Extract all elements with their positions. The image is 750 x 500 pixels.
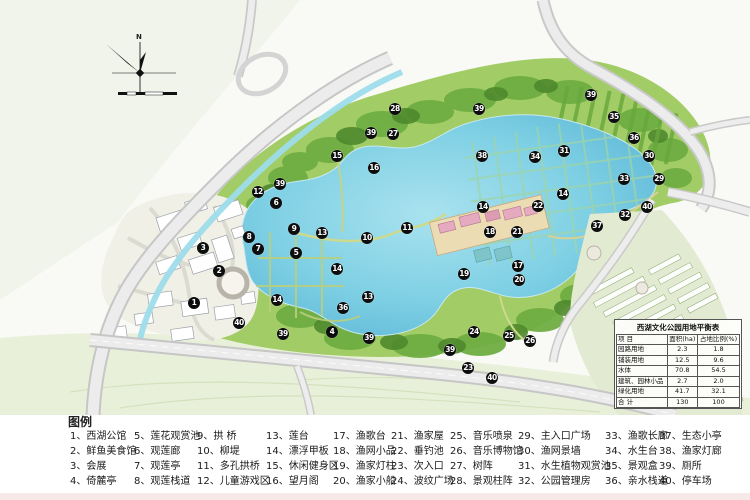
map-marker-36: 36 [628, 132, 640, 144]
map-marker-17: 17 [512, 260, 524, 272]
legend-item: 16、望月阁 [266, 475, 319, 488]
legend-item: 25、音乐喷泉 [450, 430, 513, 443]
map-marker-32: 32 [619, 209, 631, 221]
map-marker-39: 39 [277, 328, 289, 340]
table-row: 水体70.854.5 [617, 366, 740, 376]
legend-item: 4、倚麓亭 [70, 475, 116, 488]
map-marker-37: 37 [591, 220, 603, 232]
table-header-row: 项 目面积(ha)占地比例(%) [617, 335, 740, 345]
map-marker-27: 27 [387, 128, 399, 140]
bottom-strip [0, 493, 750, 500]
map-marker-4: 4 [326, 326, 338, 338]
map-marker-8: 8 [243, 231, 255, 243]
table-row: 铺装用地12.59.6 [617, 355, 740, 365]
table-header-cell: 面积(ha) [667, 335, 697, 345]
map-marker-39: 39 [585, 89, 597, 101]
map-marker-3: 3 [197, 242, 209, 254]
map-marker-14: 14 [331, 263, 343, 275]
map-marker-16: 16 [368, 162, 380, 174]
table-header-cell: 占地比例(%) [698, 335, 740, 345]
map-marker-24: 24 [468, 326, 480, 338]
table-row: 合 计130100 [617, 397, 740, 407]
legend-item: 10、柳堤 [197, 445, 240, 458]
map-marker-20: 20 [513, 274, 525, 286]
legend-item: 11、多孔拱桥 [197, 460, 260, 473]
residential-plaza-2 [636, 282, 648, 294]
map-marker-39: 39 [365, 127, 377, 139]
map-marker-22: 22 [532, 200, 544, 212]
legend-item: 23、次入口 [391, 460, 444, 473]
table-header-cell: 项 目 [617, 335, 668, 345]
map-marker-13: 13 [362, 291, 374, 303]
legend-item: 12、儿童游戏区 [197, 475, 270, 488]
map-marker-2: 2 [213, 265, 225, 277]
map-marker-11: 11 [401, 222, 413, 234]
scale-bar [118, 92, 177, 95]
legend-title: 图例 [68, 413, 92, 430]
map-marker-29: 29 [653, 173, 665, 185]
map-marker-14: 14 [557, 188, 569, 200]
legend-item: 38、渔家灯廊 [659, 445, 722, 458]
map-marker-39: 39 [444, 344, 456, 356]
legend-item: 7、观莲亭 [134, 460, 180, 473]
legend-item: 19、渔家灯柱 [333, 460, 396, 473]
map-marker-7: 7 [252, 243, 264, 255]
legend-item: 6、观莲廊 [134, 445, 180, 458]
legend-item: 34、水生台 [605, 445, 658, 458]
legend-item: 3、会展 [70, 460, 106, 473]
map-marker-12: 12 [252, 186, 264, 198]
map-marker-40: 40 [486, 372, 498, 384]
park-plan-image: N 12345678910111213131414141415161718192… [0, 0, 750, 500]
legend-item: 14、漂浮甲板 [266, 445, 329, 458]
legend-item: 21、渔家屋 [391, 430, 444, 443]
map-marker-34: 34 [529, 151, 541, 163]
legend-item: 31、水生植物观赏池 [518, 460, 611, 473]
legend-item: 2、鲜鱼美食馆 [70, 445, 136, 458]
legend-item: 9、拱 桥 [197, 430, 237, 443]
legend-item: 5、莲花观赏池 [134, 430, 200, 443]
legend-item: 20、渔家小船 [333, 475, 396, 488]
legend-item: 13、莲台 [266, 430, 309, 443]
map-marker-9: 9 [288, 223, 300, 235]
legend-item: 39、厕所 [659, 460, 702, 473]
map-marker-40: 40 [233, 317, 245, 329]
map-marker-31: 31 [558, 145, 570, 157]
legend-item: 18、渔网小品 [333, 445, 396, 458]
legend-item: 22、垂钓池 [391, 445, 444, 458]
legend-item: 32、公园管理房 [518, 475, 591, 488]
map-marker-25: 25 [503, 330, 515, 342]
legend-item: 8、观莲栈道 [134, 475, 190, 488]
table-row: 建筑、园林小品2.72.0 [617, 376, 740, 386]
legend-item: 35、景观盒 [605, 460, 658, 473]
legend-item: 27、树阵 [450, 460, 493, 473]
map-marker-36: 36 [337, 302, 349, 314]
legend-item: 37、生态小亭 [659, 430, 722, 443]
map-marker-26: 26 [524, 335, 536, 347]
map-marker-33: 33 [618, 173, 630, 185]
map-marker-6: 6 [270, 197, 282, 209]
legend-item: 29、主入口广场 [518, 430, 591, 443]
legend-item: 24、波纹广场 [391, 475, 454, 488]
svg-text:N: N [136, 33, 142, 41]
map-marker-39: 39 [363, 332, 375, 344]
map-marker-10: 10 [361, 232, 373, 244]
table-row: 绿化用地41.732.1 [617, 387, 740, 397]
map-marker-5: 5 [290, 247, 302, 259]
residential-plaza [587, 246, 601, 260]
map-marker-39: 39 [274, 178, 286, 190]
legend-item: 40、停车场 [659, 475, 712, 488]
map-marker-30: 30 [643, 150, 655, 162]
legend-item: 26、音乐博物馆 [450, 445, 523, 458]
map-marker-38: 38 [476, 150, 488, 162]
map-marker-14: 14 [271, 294, 283, 306]
map-marker-39: 39 [473, 103, 485, 115]
table-title: 西湖文化公园用地平衡表 [616, 322, 740, 333]
map-marker-28: 28 [389, 103, 401, 115]
map-marker-35: 35 [608, 111, 620, 123]
map-marker-40: 40 [641, 201, 653, 213]
map-marker-14: 14 [477, 201, 489, 213]
legend-item: 28、景观柱阵 [450, 475, 513, 488]
legend-item: 17、渔歌台 [333, 430, 386, 443]
map-marker-15: 15 [331, 150, 343, 162]
table-row: 园路用地2.31.8 [617, 345, 740, 355]
map-marker-19: 19 [458, 268, 470, 280]
map-marker-21: 21 [511, 226, 523, 238]
land-use-table: 西湖文化公园用地平衡表 项 目面积(ha)占地比例(%) 园路用地2.31.8铺… [614, 319, 742, 409]
map-marker-23: 23 [462, 362, 474, 374]
map-marker-18: 18 [484, 226, 496, 238]
legend-item: 15、休闲健身区 [266, 460, 339, 473]
map-marker-1: 1 [188, 297, 200, 309]
map-marker-13: 13 [316, 227, 328, 239]
legend-item: 1、西湖公馆 [70, 430, 126, 443]
legend-item: 30、渔网景墙 [518, 445, 581, 458]
